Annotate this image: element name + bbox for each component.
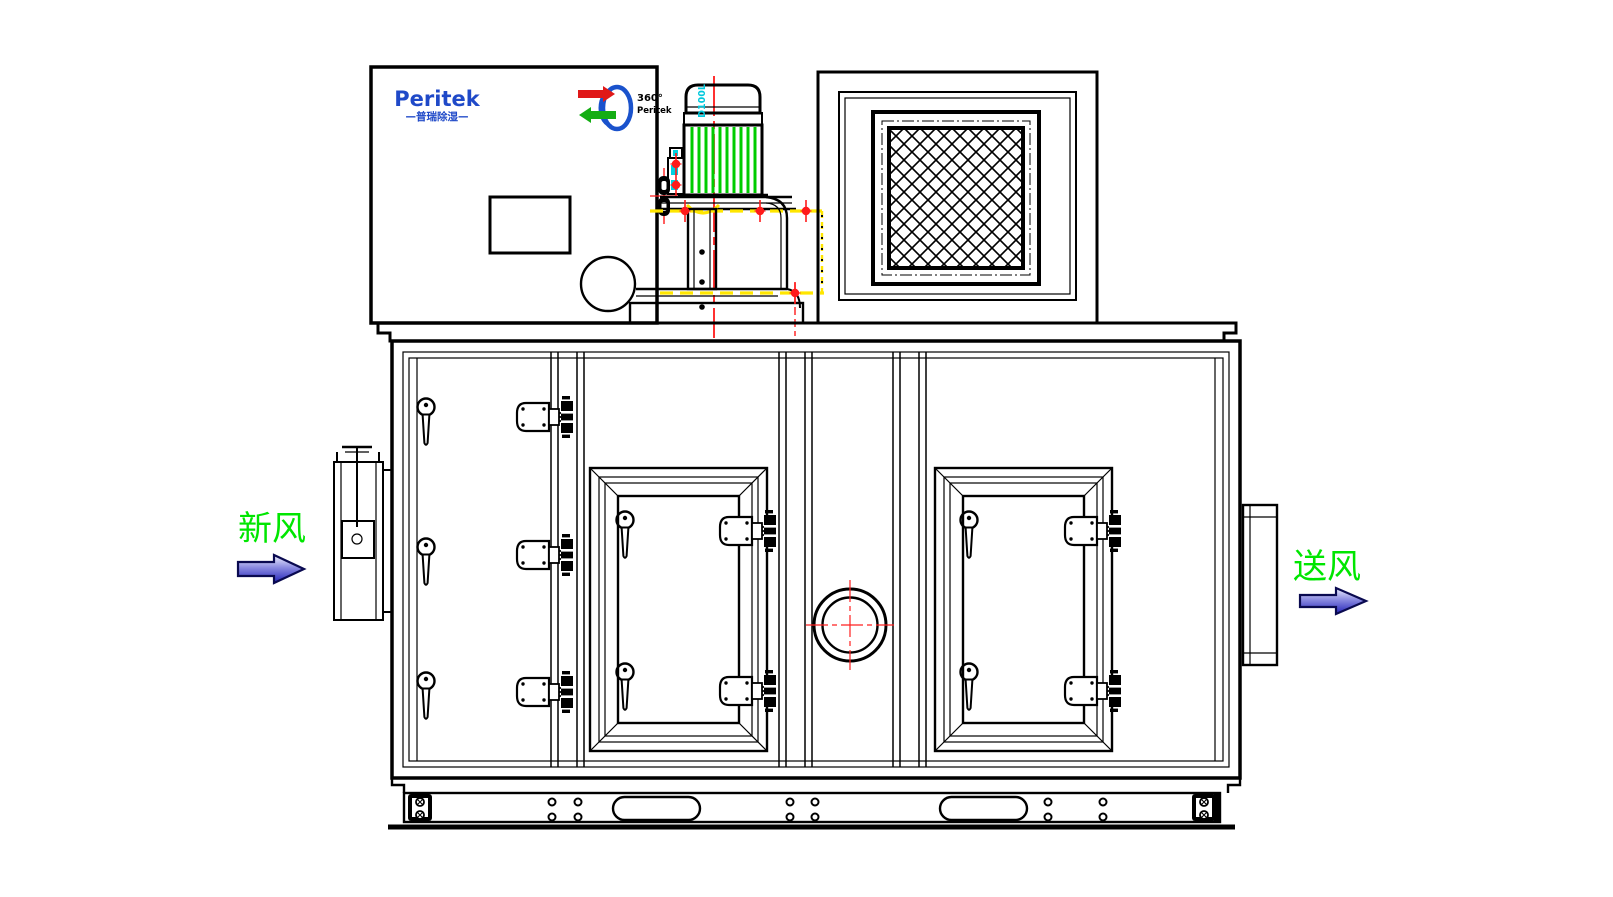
door-latch — [517, 671, 573, 713]
technical-drawing: Peritek —普瑞除湿— 360° Peritek D100L — [0, 0, 1613, 897]
brand-logo-subtitle: —普瑞除湿— — [406, 110, 469, 123]
wheel-brand-text: Peritek — [637, 106, 672, 116]
door-latch — [517, 396, 573, 438]
supply-air-label: 送风 — [1293, 547, 1361, 587]
door-latch — [720, 670, 776, 712]
fresh-air-label: 新风 — [238, 509, 306, 549]
filter-mesh — [890, 129, 1022, 267]
door-latch — [1065, 510, 1121, 552]
cabinet — [378, 323, 1240, 793]
drawing-canvas: Peritek —普瑞除湿— 360° Peritek D100L — [0, 0, 1613, 897]
anchor-bracket-left — [408, 794, 432, 821]
door-latch — [720, 510, 776, 552]
wheel-degree-text: 360° — [637, 93, 663, 104]
anchor-bracket-right — [1192, 794, 1220, 821]
brand-panel: Peritek —普瑞除湿— 360° Peritek — [371, 67, 672, 323]
door-latch — [1065, 670, 1121, 712]
motor-model-label: D100L — [697, 84, 708, 118]
door-latch — [517, 534, 573, 576]
brand-logo-text: Peritek — [394, 87, 480, 111]
